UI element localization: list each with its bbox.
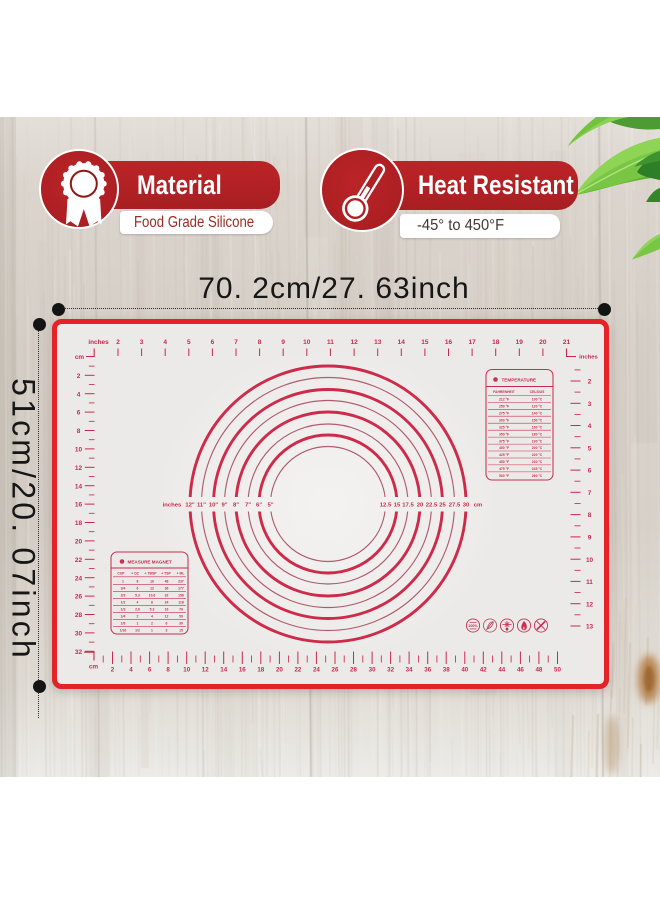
svg-text:+ ML: + ML — [177, 572, 185, 576]
svg-text:18: 18 — [257, 667, 264, 674]
svg-text:32: 32 — [387, 667, 394, 674]
svg-text:16: 16 — [239, 667, 246, 674]
svg-text:6: 6 — [148, 667, 152, 674]
svg-text:100%: 100% — [468, 624, 478, 628]
svg-text:500 °F: 500 °F — [499, 474, 509, 478]
svg-text:200 °C: 200 °C — [532, 446, 543, 450]
svg-text:8: 8 — [151, 601, 153, 605]
svg-text:14: 14 — [398, 339, 406, 346]
svg-text:245 °C: 245 °C — [532, 467, 543, 471]
svg-text:1/3: 1/3 — [121, 608, 126, 612]
svg-text:325 °F: 325 °F — [499, 425, 509, 429]
svg-text:425 °F: 425 °F — [499, 453, 509, 457]
svg-text:20: 20 — [276, 667, 283, 674]
svg-text:11": 11" — [197, 503, 206, 509]
svg-text:8: 8 — [166, 667, 170, 674]
svg-text:20: 20 — [75, 539, 83, 546]
svg-text:22: 22 — [294, 667, 301, 674]
svg-text:1: 1 — [151, 629, 153, 633]
svg-text:2: 2 — [588, 379, 592, 386]
svg-text:15: 15 — [421, 339, 429, 346]
svg-text:9: 9 — [588, 535, 592, 542]
svg-text:24: 24 — [165, 601, 169, 605]
svg-text:5.3: 5.3 — [150, 608, 155, 612]
svg-text:21: 21 — [563, 339, 571, 346]
svg-text:158: 158 — [178, 594, 184, 598]
svg-text:300 °F: 300 °F — [499, 419, 509, 423]
svg-text:2.6: 2.6 — [135, 608, 140, 612]
svg-text:13: 13 — [374, 339, 382, 346]
svg-text:42: 42 — [480, 667, 487, 674]
svg-text:2: 2 — [116, 339, 120, 346]
svg-text:12: 12 — [202, 667, 209, 674]
svg-text:5.3: 5.3 — [135, 594, 140, 598]
svg-text:150 °C: 150 °C — [532, 419, 543, 423]
svg-text:7: 7 — [588, 490, 592, 497]
svg-text:18: 18 — [75, 520, 83, 527]
svg-text:7: 7 — [234, 339, 238, 346]
svg-text:6: 6 — [166, 622, 168, 626]
svg-text:6: 6 — [211, 339, 215, 346]
svg-text:120 °C: 120 °C — [532, 405, 543, 409]
svg-text:140 °C: 140 °C — [532, 412, 543, 416]
svg-text:212 °F: 212 °F — [499, 398, 509, 402]
svg-text:10: 10 — [75, 447, 83, 454]
svg-text:20: 20 — [417, 503, 424, 509]
svg-text:8: 8 — [137, 580, 139, 584]
svg-text:190 °C: 190 °C — [532, 439, 543, 443]
svg-text:48: 48 — [535, 667, 542, 674]
svg-text:12: 12 — [75, 465, 83, 472]
svg-text:28: 28 — [75, 612, 83, 619]
svg-text:20: 20 — [539, 339, 547, 346]
svg-text:10": 10" — [209, 503, 219, 509]
svg-text:9": 9" — [221, 503, 227, 509]
svg-text:cm: cm — [89, 664, 99, 671]
svg-text:9: 9 — [281, 339, 285, 346]
svg-text:+ TBSP: + TBSP — [145, 572, 158, 576]
svg-text:15: 15 — [394, 503, 401, 509]
svg-text:25: 25 — [439, 503, 446, 509]
svg-text:50: 50 — [554, 667, 561, 674]
svg-text:32: 32 — [75, 649, 83, 656]
svg-text:27.5: 27.5 — [449, 503, 461, 509]
svg-text:10: 10 — [303, 339, 311, 346]
svg-text:15: 15 — [179, 629, 183, 633]
svg-text:44: 44 — [498, 667, 505, 674]
svg-text:4: 4 — [163, 339, 167, 346]
svg-text:13: 13 — [586, 624, 594, 631]
svg-text:237: 237 — [178, 580, 184, 584]
svg-text:4: 4 — [77, 391, 81, 398]
svg-text:46: 46 — [517, 667, 524, 674]
svg-text:11: 11 — [327, 339, 334, 346]
svg-text:1/16: 1/16 — [120, 629, 127, 633]
svg-text:250 °F: 250 °F — [499, 405, 509, 409]
svg-text:2: 2 — [77, 373, 81, 380]
svg-text:22: 22 — [75, 557, 83, 564]
svg-text:475 °F: 475 °F — [499, 467, 509, 471]
svg-text:8: 8 — [77, 428, 81, 435]
svg-text:14: 14 — [75, 483, 83, 490]
svg-text:28: 28 — [350, 667, 357, 674]
svg-text:16: 16 — [445, 339, 453, 346]
svg-text:12: 12 — [586, 601, 594, 608]
svg-text:7": 7" — [245, 503, 251, 509]
svg-text:5": 5" — [267, 503, 273, 509]
svg-text:FAHRENHEIT: FAHRENHEIT — [493, 390, 516, 394]
svg-text:118: 118 — [178, 601, 184, 605]
svg-text:17.5: 17.5 — [402, 503, 414, 509]
svg-text:2: 2 — [111, 667, 115, 674]
svg-text:30: 30 — [369, 667, 376, 674]
svg-text:1/2: 1/2 — [121, 601, 126, 605]
svg-text:230 °C: 230 °C — [532, 460, 543, 464]
svg-text:3: 3 — [140, 339, 144, 346]
svg-text:1/4: 1/4 — [121, 615, 126, 619]
svg-text:40: 40 — [461, 667, 468, 674]
svg-text:1/2: 1/2 — [135, 629, 140, 633]
svg-text:26: 26 — [75, 594, 83, 601]
svg-text:+ OZ: + OZ — [131, 572, 139, 576]
svg-text:cm: cm — [75, 354, 85, 361]
svg-text:16: 16 — [165, 608, 169, 612]
svg-text:400 °F: 400 °F — [499, 446, 509, 450]
svg-text:6: 6 — [137, 587, 139, 591]
svg-text:36: 36 — [165, 587, 169, 591]
svg-text:32: 32 — [165, 594, 169, 598]
svg-text:59: 59 — [179, 615, 183, 619]
svg-text:6: 6 — [588, 468, 592, 475]
svg-text:4: 4 — [151, 615, 153, 619]
svg-text:4: 4 — [129, 667, 133, 674]
svg-text:24: 24 — [75, 575, 83, 582]
svg-text:12: 12 — [150, 587, 154, 591]
svg-text:5: 5 — [588, 445, 592, 452]
svg-text:8: 8 — [258, 339, 262, 346]
svg-text:19: 19 — [516, 339, 524, 346]
svg-text:14: 14 — [220, 667, 227, 674]
svg-text:6": 6" — [256, 503, 262, 509]
svg-text:30: 30 — [75, 631, 83, 638]
svg-text:+ TSP: + TSP — [161, 572, 171, 576]
svg-text:MEASURE MAGNET: MEASURE MAGNET — [128, 560, 172, 565]
svg-text:18: 18 — [492, 339, 500, 346]
svg-text:177: 177 — [178, 587, 184, 591]
svg-text:260 °C: 260 °C — [532, 474, 543, 478]
svg-text:24: 24 — [313, 667, 320, 674]
svg-text:CELSIUS: CELSIUS — [530, 390, 545, 394]
svg-text:350 °F: 350 °F — [499, 432, 509, 436]
svg-text:TEMPERATURE: TEMPERATURE — [502, 378, 537, 383]
svg-text:3: 3 — [588, 401, 592, 408]
svg-text:11: 11 — [586, 579, 593, 586]
svg-text:36: 36 — [424, 667, 431, 674]
svg-text:inches: inches — [163, 503, 182, 509]
svg-text:4: 4 — [137, 601, 139, 605]
svg-text:cm: cm — [474, 503, 483, 509]
svg-text:1: 1 — [137, 622, 139, 626]
svg-text:CUP: CUP — [117, 572, 125, 576]
svg-text:34: 34 — [406, 667, 413, 674]
svg-text:22.5: 22.5 — [426, 503, 438, 509]
svg-text:1/8: 1/8 — [121, 622, 126, 626]
svg-text:12: 12 — [350, 339, 358, 346]
svg-text:12.5: 12.5 — [380, 503, 392, 509]
svg-text:3/4: 3/4 — [121, 587, 126, 591]
svg-text:2: 2 — [137, 615, 139, 619]
svg-text:10.6: 10.6 — [149, 594, 156, 598]
svg-text:79: 79 — [179, 608, 183, 612]
svg-text:10: 10 — [183, 667, 190, 674]
svg-text:30: 30 — [463, 503, 470, 509]
svg-text:2: 2 — [151, 622, 153, 626]
svg-text:3: 3 — [166, 629, 168, 633]
svg-text:8": 8" — [233, 503, 239, 509]
svg-text:17: 17 — [468, 339, 476, 346]
svg-text:375 °F: 375 °F — [499, 439, 509, 443]
svg-text:1: 1 — [122, 580, 124, 584]
svg-text:38: 38 — [443, 667, 450, 674]
svg-text:16: 16 — [150, 580, 154, 584]
svg-text:12: 12 — [165, 615, 169, 619]
svg-text:160 °C: 160 °C — [532, 425, 543, 429]
svg-text:450 °F: 450 °F — [499, 460, 509, 464]
svg-text:2/3: 2/3 — [121, 594, 126, 598]
svg-text:12": 12" — [185, 503, 195, 509]
svg-text:180 °C: 180 °C — [532, 432, 543, 436]
svg-text:30: 30 — [179, 622, 183, 626]
svg-text:10: 10 — [586, 557, 594, 564]
svg-text:4: 4 — [588, 423, 592, 430]
svg-text:220 °C: 220 °C — [532, 453, 543, 457]
svg-text:48: 48 — [165, 580, 169, 584]
svg-text:8: 8 — [588, 512, 592, 519]
svg-text:275 °F: 275 °F — [499, 412, 509, 416]
svg-text:100 °C: 100 °C — [532, 398, 543, 402]
svg-text:26: 26 — [332, 667, 339, 674]
svg-text:6: 6 — [77, 410, 81, 417]
svg-text:inches: inches — [579, 355, 598, 361]
svg-text:5: 5 — [187, 339, 191, 346]
svg-text:inches: inches — [88, 339, 109, 346]
svg-text:16: 16 — [75, 502, 83, 509]
